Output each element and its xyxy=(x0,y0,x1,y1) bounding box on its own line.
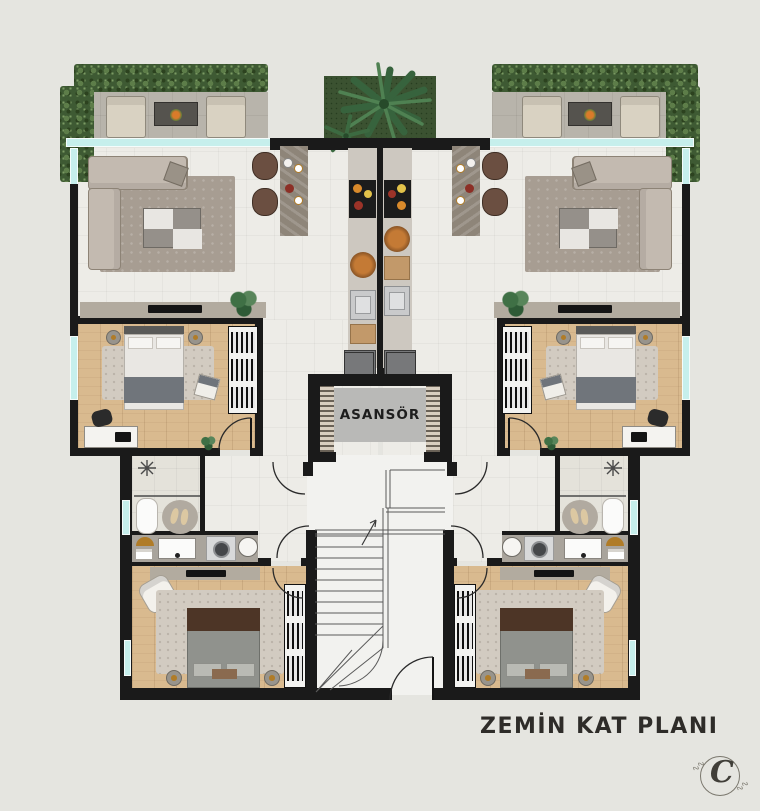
plan-title: ZEMİN KAT PLANI xyxy=(480,714,692,739)
floor-plan-page: { "plan": { "title": "ZEMİN KAT PLANI", … xyxy=(0,0,760,811)
floor-plan: ASANSÖR xyxy=(0,0,760,811)
brand-logo: C ∿∿ ∿∿ xyxy=(692,748,754,806)
stairs-and-doors-linework xyxy=(0,0,760,811)
logo-monogram: C xyxy=(710,758,734,788)
